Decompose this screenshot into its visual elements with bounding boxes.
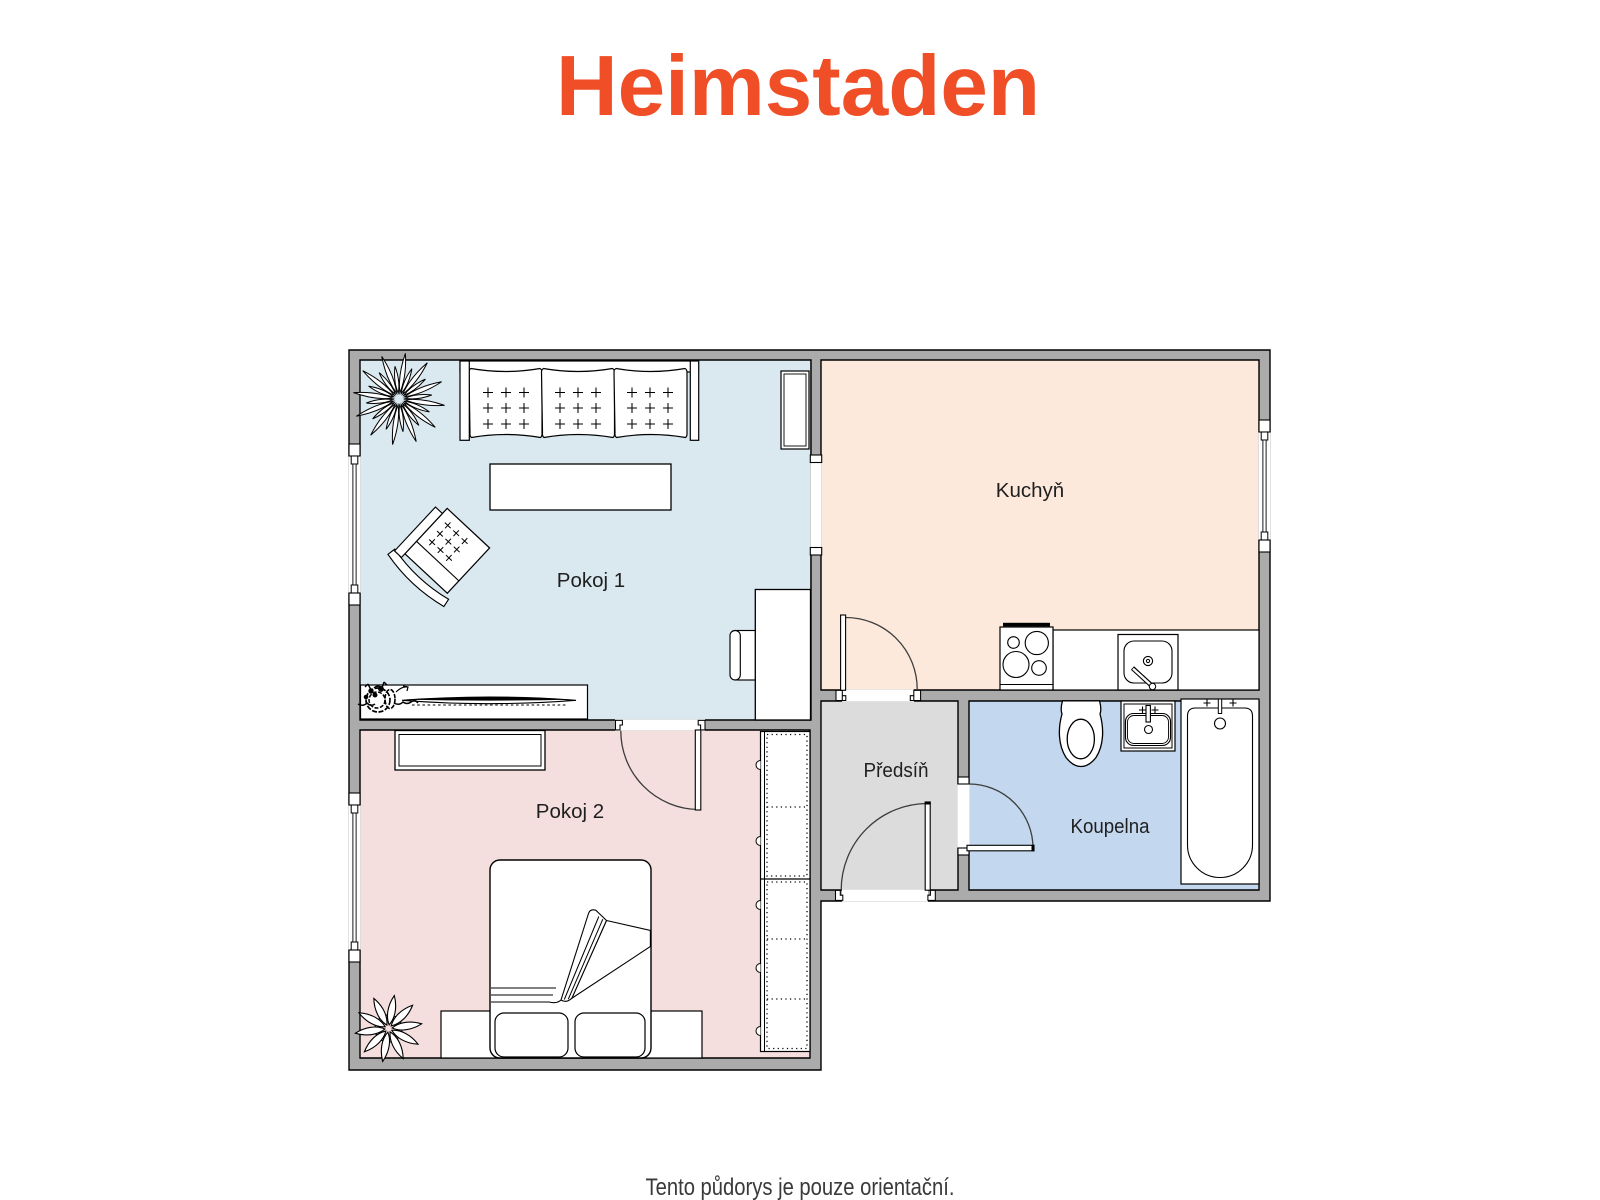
svg-text:Předsíň: Předsíň <box>864 759 929 782</box>
svg-text:Pokoj 1: Pokoj 1 <box>557 569 625 592</box>
svg-text:Koupelna: Koupelna <box>1071 815 1151 838</box>
svg-text:Pokoj 2: Pokoj 2 <box>536 800 604 823</box>
svg-text:Tento půdorys je pouze orienta: Tento půdorys je pouze orientační. <box>646 1174 955 1200</box>
svg-text:Kuchyň: Kuchyň <box>996 479 1064 502</box>
svg-text:Heimstaden: Heimstaden <box>556 39 1040 134</box>
